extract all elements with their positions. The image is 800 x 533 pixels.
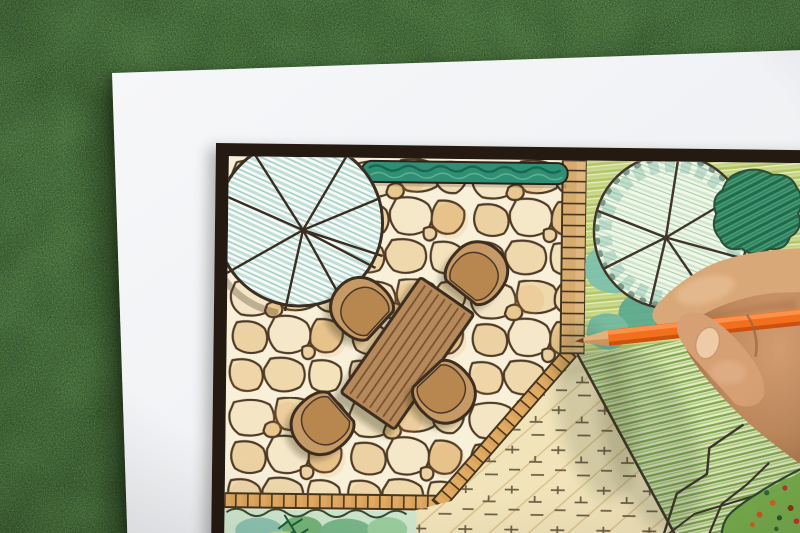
photo-scene (0, 0, 800, 533)
garden-plan (210, 143, 800, 533)
dark-shrub (713, 169, 800, 254)
flower-bed-bottom-left (224, 509, 417, 533)
hedge (361, 161, 567, 189)
